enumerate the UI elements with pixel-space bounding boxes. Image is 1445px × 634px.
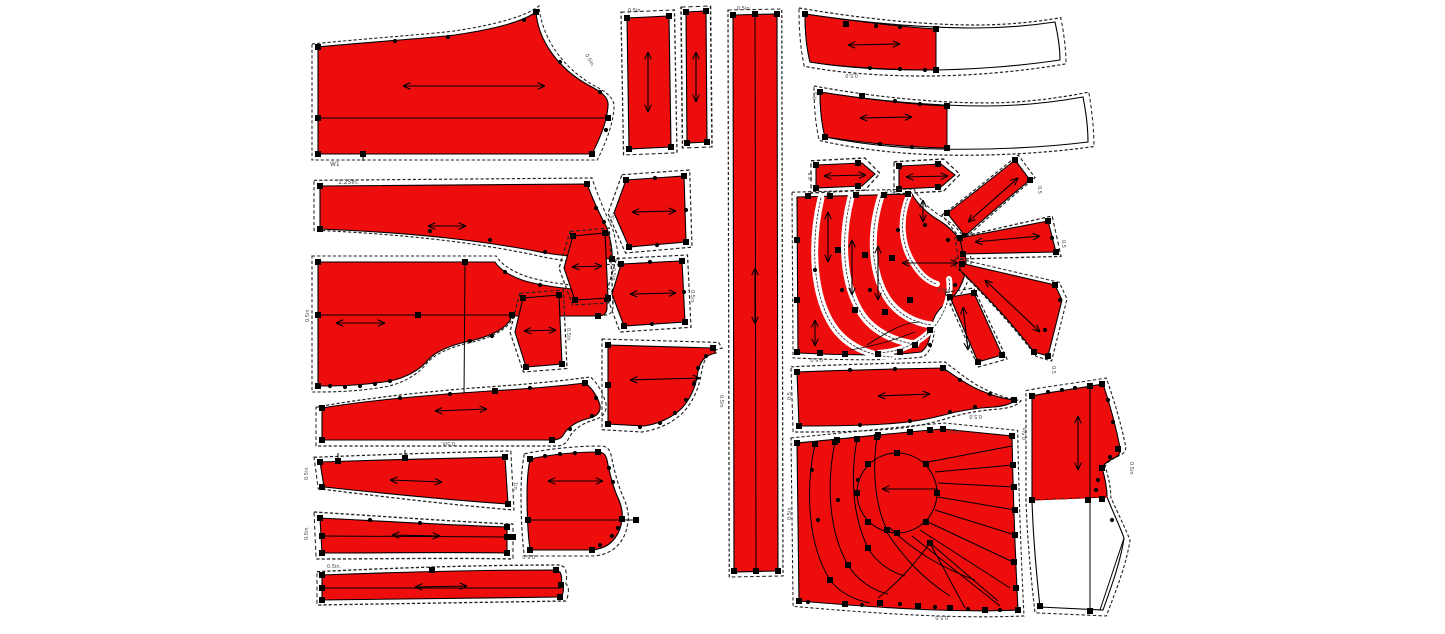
control-node-handle[interactable] — [319, 597, 325, 603]
control-node-handle[interactable] — [681, 173, 687, 179]
piece-outline[interactable] — [797, 429, 1018, 611]
curve-point[interactable] — [373, 382, 377, 386]
control-node-handle[interactable] — [595, 313, 601, 319]
control-node-handle[interactable] — [704, 139, 710, 145]
control-node-handle[interactable] — [504, 550, 510, 556]
curve-point[interactable] — [696, 366, 700, 370]
curve-point[interactable] — [684, 398, 688, 402]
piece-outline[interactable] — [322, 383, 600, 440]
curve-point[interactable] — [896, 228, 900, 232]
control-node-handle[interactable] — [1053, 249, 1059, 255]
control-node-handle[interactable] — [595, 449, 601, 455]
control-node-handle[interactable] — [549, 437, 555, 443]
curve-point[interactable] — [673, 411, 677, 415]
control-node-handle[interactable] — [912, 342, 918, 348]
control-node-handle[interactable] — [319, 405, 325, 411]
curve-point[interactable] — [893, 99, 897, 103]
piece-outline[interactable] — [608, 345, 716, 426]
control-node-handle[interactable] — [854, 490, 860, 496]
curve-point[interactable] — [648, 260, 652, 264]
control-node-handle[interactable] — [907, 297, 913, 303]
control-node-handle[interactable] — [1027, 177, 1033, 183]
curve-point[interactable] — [958, 378, 962, 382]
curve-point[interactable] — [503, 270, 507, 274]
control-node-handle[interactable] — [975, 359, 981, 365]
control-node-handle[interactable] — [944, 145, 950, 151]
control-node-handle[interactable] — [960, 251, 966, 257]
curve-point[interactable] — [1046, 390, 1050, 394]
control-node-handle[interactable] — [523, 364, 529, 370]
control-node-handle[interactable] — [889, 255, 895, 261]
curve-point[interactable] — [988, 392, 992, 396]
control-node-handle[interactable] — [1011, 559, 1017, 565]
curve-point[interactable] — [418, 521, 422, 525]
control-node-handle[interactable] — [805, 193, 811, 199]
control-node-handle[interactable] — [710, 345, 716, 351]
waistband-top[interactable]: 0.5.0 — [799, 8, 1066, 78]
waistband-lower[interactable]: 0.5 — [812, 86, 1094, 155]
curve-point[interactable] — [973, 405, 977, 409]
control-node-handle[interactable] — [558, 582, 564, 588]
curve-point[interactable] — [928, 343, 932, 347]
control-node-handle[interactable] — [1099, 381, 1105, 387]
curve-point[interactable] — [328, 384, 332, 388]
control-node-handle[interactable] — [753, 568, 759, 574]
control-node-handle[interactable] — [730, 12, 736, 18]
control-node-handle[interactable] — [527, 547, 533, 553]
control-node-handle[interactable] — [553, 567, 559, 573]
control-node-handle[interactable] — [315, 44, 321, 50]
control-node-handle[interactable] — [1087, 383, 1093, 389]
pocket-piece[interactable]: 0.5.0 — [521, 446, 639, 559]
curve-point[interactable] — [448, 392, 452, 396]
control-node-handle[interactable] — [679, 258, 685, 264]
control-node-handle[interactable] — [794, 440, 800, 446]
control-node-handle[interactable] — [731, 568, 737, 574]
control-node-handle[interactable] — [1010, 462, 1016, 468]
control-node-handle[interactable] — [319, 585, 325, 591]
control-node-handle[interactable] — [605, 342, 611, 348]
control-node-handle[interactable] — [1045, 353, 1051, 359]
control-node-handle[interactable] — [874, 434, 880, 440]
curve-point[interactable] — [607, 466, 611, 470]
control-node-handle[interactable] — [315, 383, 321, 389]
band-middle[interactable]: 0.5in — [304, 512, 516, 559]
curve-point[interactable] — [836, 498, 840, 502]
control-node-handle[interactable] — [319, 484, 325, 490]
curve-point[interactable] — [1073, 386, 1077, 390]
control-node-handle[interactable] — [882, 309, 888, 315]
control-node-handle[interactable] — [623, 177, 629, 183]
control-node-handle[interactable] — [894, 530, 900, 536]
control-node-handle[interactable] — [1012, 157, 1018, 163]
curve-point[interactable] — [898, 25, 902, 29]
control-node-handle[interactable] — [957, 235, 963, 241]
control-node-handle[interactable] — [752, 11, 758, 17]
control-node-handle[interactable] — [559, 361, 565, 367]
curve-point[interactable] — [446, 35, 450, 39]
control-node-handle[interactable] — [940, 426, 946, 432]
control-node-handle[interactable] — [317, 515, 323, 521]
curve-point[interactable] — [684, 208, 688, 212]
curve-point[interactable] — [1106, 398, 1110, 402]
arrow-strip-1[interactable]: 0.5 — [808, 158, 880, 193]
arrow-strip-2[interactable]: 0.5in — [885, 159, 960, 196]
control-node-handle[interactable] — [504, 524, 510, 530]
control-node-handle[interactable] — [319, 437, 325, 443]
control-node-handle[interactable] — [502, 454, 508, 460]
pattern-canvas[interactable]: W10.5in.1.25in.0.5in0.5in.1in.0.5in0.5in… — [0, 0, 1445, 634]
skirt-draft-square[interactable]: 0.5in0.5.00.5in — [787, 423, 1024, 620]
curve-point[interactable] — [810, 468, 814, 472]
control-node-handle[interactable] — [774, 11, 780, 17]
curve-point[interactable] — [388, 379, 392, 383]
curve-point[interactable] — [948, 410, 952, 414]
curve-point[interactable] — [543, 454, 547, 458]
control-node-handle[interactable] — [1013, 585, 1019, 591]
control-node-handle[interactable] — [944, 210, 950, 216]
control-node-handle[interactable] — [619, 516, 625, 522]
control-node-handle[interactable] — [934, 490, 940, 496]
piece-outline[interactable] — [947, 160, 1030, 236]
curve-point[interactable] — [966, 607, 970, 611]
curve-point[interactable] — [682, 290, 686, 294]
control-node-handle[interactable] — [933, 67, 939, 73]
curve-point[interactable] — [898, 67, 902, 71]
piece-outline[interactable] — [318, 12, 608, 154]
control-node-handle[interactable] — [605, 115, 611, 121]
control-node-handle[interactable] — [865, 545, 871, 551]
control-node-handle[interactable] — [360, 151, 366, 157]
control-node-handle[interactable] — [947, 294, 953, 300]
control-node-handle[interactable] — [1099, 465, 1105, 471]
control-node-handle[interactable] — [525, 517, 531, 523]
control-node-handle[interactable] — [927, 427, 933, 433]
lower-band-right[interactable]: 0.5.00.5 — [787, 362, 1021, 432]
control-node-handle[interactable] — [1009, 433, 1015, 439]
curve-point[interactable] — [655, 243, 659, 247]
cuff-flag[interactable]: 0.5in — [602, 339, 724, 432]
control-node-handle[interactable] — [812, 441, 818, 447]
control-node-handle[interactable] — [429, 567, 435, 573]
control-node-handle[interactable] — [319, 572, 325, 578]
control-node-handle[interactable] — [794, 297, 800, 303]
curve-point[interactable] — [1058, 298, 1062, 302]
long-vertical-strip[interactable]: 0.5in. — [728, 6, 783, 577]
control-node-handle[interactable] — [668, 144, 674, 150]
curve-point[interactable] — [358, 384, 362, 388]
control-node-handle[interactable] — [684, 140, 690, 146]
control-node-handle[interactable] — [794, 237, 800, 243]
control-node-handle[interactable] — [319, 550, 325, 556]
control-node-handle[interactable] — [1031, 349, 1037, 355]
control-node-handle[interactable] — [817, 350, 823, 356]
control-node-handle[interactable] — [570, 233, 576, 239]
curve-point[interactable] — [598, 90, 602, 94]
control-node-handle[interactable] — [884, 527, 890, 533]
control-node-handle[interactable] — [775, 568, 781, 574]
curve-point[interactable] — [398, 396, 402, 400]
curve-point[interactable] — [568, 427, 572, 431]
control-node-handle[interactable] — [624, 15, 630, 21]
control-node-handle[interactable] — [835, 247, 841, 253]
control-node-handle[interactable] — [633, 517, 639, 523]
facing-rect[interactable]: 0.5in. — [621, 8, 677, 155]
control-node-handle[interactable] — [927, 540, 933, 546]
gusset-a[interactable]: 0.5in — [608, 170, 692, 253]
curve-point[interactable] — [923, 223, 927, 227]
control-node-handle[interactable] — [935, 184, 941, 190]
control-node-handle[interactable] — [842, 351, 848, 357]
control-node-handle[interactable] — [1029, 497, 1035, 503]
curve-point[interactable] — [490, 334, 494, 338]
curve-point[interactable] — [602, 220, 606, 224]
control-node-handle[interactable] — [865, 461, 871, 467]
curve-point[interactable] — [604, 128, 608, 132]
curve-point[interactable] — [848, 368, 852, 372]
curve-point[interactable] — [590, 414, 594, 418]
control-node-handle[interactable] — [618, 261, 624, 267]
curve-point[interactable] — [528, 386, 532, 390]
control-node-handle[interactable] — [927, 327, 933, 333]
control-node-handle[interactable] — [940, 365, 946, 371]
bodice-side-panel[interactable]: 0.5in0.5in — [1022, 378, 1134, 616]
curve-point[interactable] — [813, 268, 817, 272]
curve-point[interactable] — [868, 66, 872, 70]
control-node-handle[interactable] — [865, 519, 871, 525]
control-node-handle[interactable] — [813, 162, 819, 168]
control-node-handle[interactable] — [842, 601, 848, 607]
control-node-handle[interactable] — [794, 369, 800, 375]
control-node-handle[interactable] — [582, 380, 588, 386]
control-node-handle[interactable] — [666, 13, 672, 19]
control-node-handle[interactable] — [1115, 446, 1121, 452]
curve-point[interactable] — [840, 288, 844, 292]
curve-point[interactable] — [933, 605, 937, 609]
band-strip-bottom[interactable]: 0.5in. — [317, 564, 568, 605]
control-node-handle[interactable] — [1011, 397, 1017, 403]
curve-point[interactable] — [908, 419, 912, 423]
control-node-handle[interactable] — [602, 230, 608, 236]
control-node-handle[interactable] — [315, 259, 321, 265]
curve-point[interactable] — [573, 451, 577, 455]
curve-point[interactable] — [856, 478, 860, 482]
facing-rect-narrow[interactable] — [681, 6, 712, 148]
control-node-handle[interactable] — [862, 252, 868, 258]
control-node-handle[interactable] — [897, 349, 903, 355]
curve-point[interactable] — [898, 602, 902, 606]
curve-point[interactable] — [598, 543, 602, 547]
control-node-handle[interactable] — [557, 594, 563, 600]
curve-point[interactable] — [653, 176, 657, 180]
curve-point[interactable] — [998, 608, 1002, 612]
curve-point[interactable] — [543, 250, 547, 254]
control-node-handle[interactable] — [520, 295, 526, 301]
control-node-handle[interactable] — [527, 456, 533, 462]
curve-point[interactable] — [953, 283, 957, 287]
control-node-handle[interactable] — [315, 312, 321, 318]
control-node-handle[interactable] — [855, 183, 861, 189]
curve-point[interactable] — [611, 480, 615, 484]
curve-point[interactable] — [868, 288, 872, 292]
curve-point[interactable] — [368, 518, 372, 522]
gusset-c[interactable]: 0.5in — [606, 255, 695, 332]
curve-point[interactable] — [946, 238, 950, 242]
piece-outline[interactable] — [627, 16, 671, 149]
curve-point[interactable] — [428, 229, 432, 233]
control-node-handle[interactable] — [853, 192, 859, 198]
control-node-handle[interactable] — [935, 161, 941, 167]
control-node-handle[interactable] — [589, 151, 595, 157]
control-node-handle[interactable] — [415, 312, 421, 318]
control-node-handle[interactable] — [845, 562, 851, 568]
curve-point[interactable] — [893, 367, 897, 371]
control-node-handle[interactable] — [881, 192, 887, 198]
curve-point[interactable] — [1094, 488, 1098, 492]
marker-layout-svg[interactable]: W10.5in.1.25in.0.5in0.5in.1in.0.5in0.5in… — [0, 0, 1445, 634]
control-node-handle[interactable] — [572, 297, 578, 303]
control-node-handle[interactable] — [317, 183, 323, 189]
control-node-handle[interactable] — [683, 9, 689, 15]
piece-outline[interactable] — [322, 570, 563, 600]
control-node-handle[interactable] — [827, 193, 833, 199]
control-node-handle[interactable] — [317, 459, 323, 465]
curve-point[interactable] — [878, 142, 882, 146]
control-node-handle[interactable] — [1037, 603, 1043, 609]
control-node-handle[interactable] — [1099, 496, 1105, 502]
control-node-handle[interactable] — [944, 103, 950, 109]
control-node-handle[interactable] — [843, 21, 849, 27]
curve-point[interactable] — [1043, 328, 1047, 332]
curve-point[interactable] — [1108, 455, 1112, 459]
control-node-handle[interactable] — [626, 244, 632, 250]
control-node-handle[interactable] — [589, 547, 595, 553]
control-node-handle[interactable] — [999, 352, 1005, 358]
control-node-handle[interactable] — [510, 534, 516, 540]
curve-point[interactable] — [488, 238, 492, 242]
control-node-handle[interactable] — [556, 292, 562, 298]
curve-point[interactable] — [1111, 420, 1115, 424]
curve-point[interactable] — [538, 283, 542, 287]
curve-point[interactable] — [638, 425, 642, 429]
control-node-handle[interactable] — [492, 388, 498, 394]
control-node-handle[interactable] — [832, 439, 838, 445]
control-node-handle[interactable] — [923, 519, 929, 525]
control-node-handle[interactable] — [923, 461, 929, 467]
curve-point[interactable] — [806, 600, 810, 604]
curve-point[interactable] — [616, 526, 620, 530]
control-node-handle[interactable] — [504, 534, 510, 540]
control-node-handle[interactable] — [315, 115, 321, 121]
curve-point[interactable] — [704, 354, 708, 358]
control-node-handle[interactable] — [462, 259, 468, 265]
control-node-handle[interactable] — [621, 323, 627, 329]
control-node-handle[interactable] — [852, 307, 858, 313]
curve-point[interactable] — [522, 18, 526, 22]
control-node-handle[interactable] — [626, 146, 632, 152]
curve-point[interactable] — [468, 339, 472, 343]
curve-point[interactable] — [1060, 388, 1064, 392]
control-node-handle[interactable] — [822, 134, 828, 140]
curve-point[interactable] — [860, 603, 864, 607]
control-node-handle[interactable] — [584, 181, 590, 187]
control-node-handle[interactable] — [802, 11, 808, 17]
control-node-handle[interactable] — [1015, 607, 1021, 613]
control-node-handle[interactable] — [319, 533, 325, 539]
control-node-handle[interactable] — [855, 160, 861, 166]
control-node-handle[interactable] — [875, 351, 881, 357]
control-node-handle[interactable] — [703, 8, 709, 14]
curve-point[interactable] — [816, 518, 820, 522]
control-node-handle[interactable] — [1011, 484, 1017, 490]
control-node-handle[interactable] — [933, 26, 939, 32]
control-node-handle[interactable] — [317, 226, 323, 232]
curve-point[interactable] — [610, 534, 614, 538]
control-node-handle[interactable] — [315, 151, 321, 157]
piece-outline[interactable] — [320, 184, 612, 259]
control-node-handle[interactable] — [1045, 218, 1051, 224]
control-node-handle[interactable] — [982, 607, 988, 613]
control-node-handle[interactable] — [1085, 497, 1091, 503]
control-node-handle[interactable] — [402, 455, 408, 461]
control-node-handle[interactable] — [335, 458, 341, 464]
curve-point[interactable] — [594, 206, 598, 210]
curve-point[interactable] — [874, 24, 878, 28]
control-node-handle[interactable] — [1012, 532, 1018, 538]
control-node-handle[interactable] — [1087, 608, 1093, 614]
control-node-handle[interactable] — [971, 290, 977, 296]
band-upper[interactable]: 1in.0.5in — [304, 450, 518, 510]
control-node-handle[interactable] — [827, 577, 833, 583]
curve-point[interactable] — [558, 60, 562, 64]
control-node-handle[interactable] — [905, 191, 911, 197]
curve-point[interactable] — [1110, 518, 1114, 522]
control-node-handle[interactable] — [605, 382, 611, 388]
control-node-handle[interactable] — [796, 598, 802, 604]
front-panel-large[interactable]: W10.5in. — [312, 6, 614, 168]
control-node-handle[interactable] — [794, 349, 800, 355]
control-node-handle[interactable] — [683, 239, 689, 245]
control-node-handle[interactable] — [682, 319, 688, 325]
curve-point[interactable] — [923, 68, 927, 72]
control-node-handle[interactable] — [854, 436, 860, 442]
curve-point[interactable] — [658, 421, 662, 425]
curve-point[interactable] — [918, 102, 922, 106]
control-node-handle[interactable] — [959, 261, 965, 267]
control-node-handle[interactable] — [896, 163, 902, 169]
control-node-handle[interactable] — [609, 256, 615, 262]
control-node-handle[interactable] — [605, 421, 611, 427]
control-node-handle[interactable] — [1052, 282, 1058, 288]
curve-point[interactable] — [1050, 236, 1054, 240]
control-node-handle[interactable] — [505, 501, 511, 507]
curve-point[interactable] — [343, 385, 347, 389]
control-node-handle[interactable] — [796, 423, 802, 429]
control-node-handle[interactable] — [533, 9, 539, 15]
control-node-handle[interactable] — [877, 600, 883, 606]
curve-point[interactable] — [692, 382, 696, 386]
control-node-handle[interactable] — [813, 185, 819, 191]
curve-point[interactable] — [594, 396, 598, 400]
control-node-handle[interactable] — [907, 429, 913, 435]
control-node-handle[interactable] — [1012, 507, 1018, 513]
curve-point[interactable] — [858, 423, 862, 427]
curve-point[interactable] — [1096, 478, 1100, 482]
control-node-handle[interactable] — [859, 93, 865, 99]
control-node-handle[interactable] — [915, 603, 921, 609]
curve-point[interactable] — [910, 145, 914, 149]
curve-point[interactable] — [650, 322, 654, 326]
